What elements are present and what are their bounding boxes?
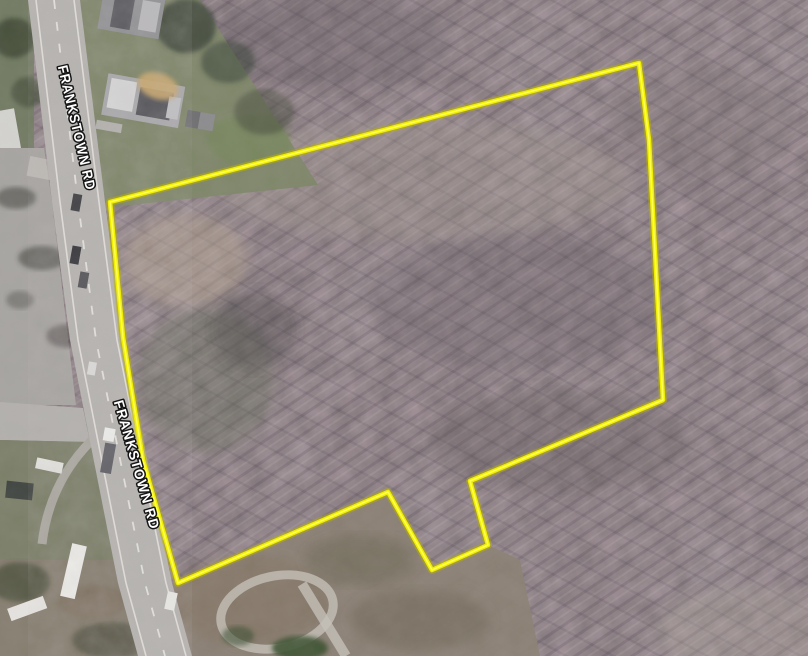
map-canvas: FRANKSTOWN RD FRANKSTOWN RD	[0, 0, 808, 656]
aerial-image: FRANKSTOWN RD FRANKSTOWN RD	[0, 0, 808, 656]
